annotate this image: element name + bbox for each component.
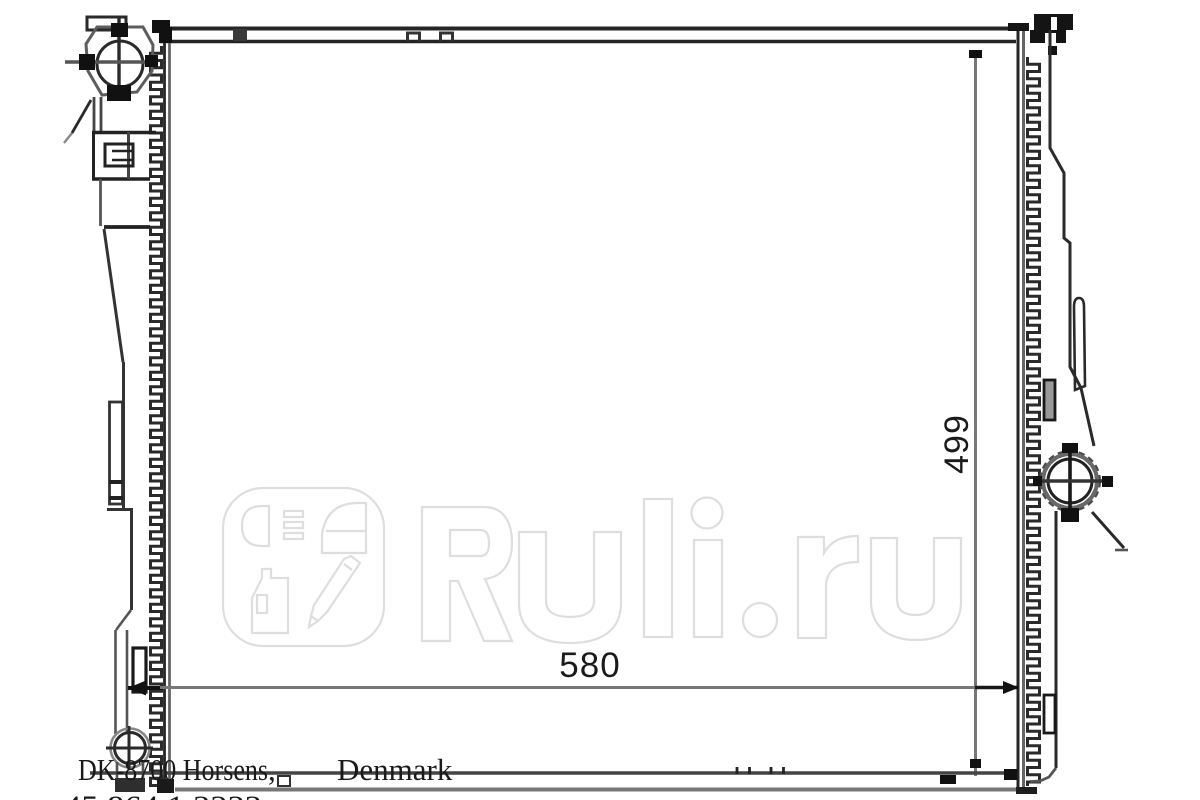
svg-text:499: 499	[938, 414, 976, 474]
svg-text:Denmark: Denmark	[337, 752, 453, 787]
svg-text:,: ,	[268, 752, 276, 787]
svg-text:45 864 1 2222: 45 864 1 2222	[64, 789, 262, 800]
svg-text:580: 580	[559, 646, 620, 685]
svg-text:DK-8700 Horsens: DK-8700 Horsens	[78, 752, 268, 787]
